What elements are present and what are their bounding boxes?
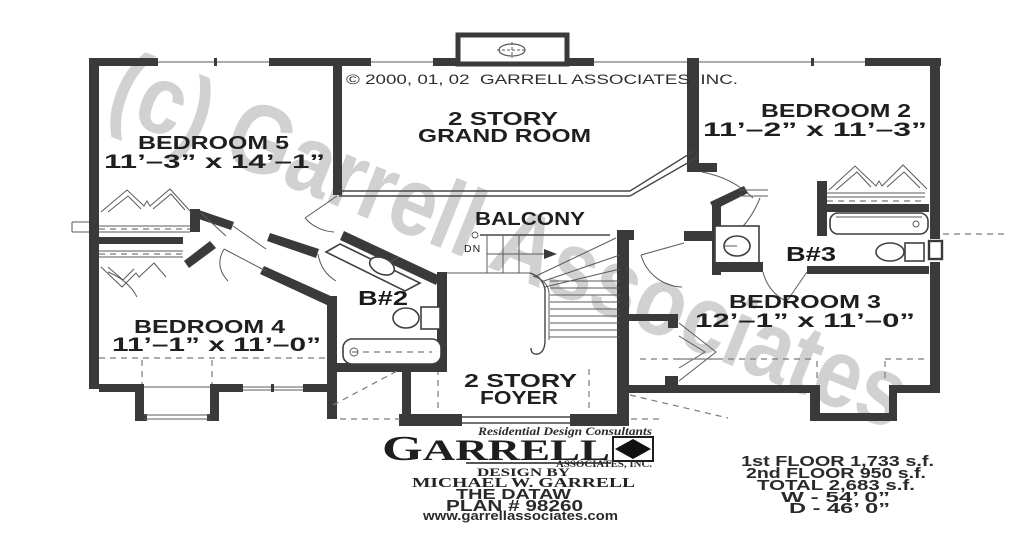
- svg-text:12’–1” x 11’–0”: 12’–1” x 11’–0”: [695, 311, 915, 332]
- svg-text:D - 46’ 0”: D - 46’ 0”: [789, 500, 890, 517]
- svg-text:B#3: B#3: [786, 244, 836, 266]
- svg-text:FOYER: FOYER: [480, 388, 558, 408]
- svg-text:GRAND ROOM: GRAND ROOM: [418, 126, 591, 146]
- svg-text:11’–1” x 11’–0”: 11’–1” x 11’–0”: [112, 335, 321, 356]
- svg-text:BALCONY: BALCONY: [475, 209, 585, 229]
- svg-text:ASSOCIATES, INC.: ASSOCIATES, INC.: [556, 459, 652, 469]
- svg-text:11’–2” x 11’–3”: 11’–2” x 11’–3”: [703, 120, 927, 141]
- svg-text:BEDROOM 2: BEDROOM 2: [761, 101, 911, 121]
- svg-text:BEDROOM 5: BEDROOM 5: [138, 133, 289, 153]
- svg-text:B#2: B#2: [358, 288, 408, 310]
- svg-text:DN: DN: [464, 243, 481, 255]
- svg-text:www.garrellassociates.com: www.garrellassociates.com: [422, 508, 618, 523]
- svg-text:BEDROOM 3: BEDROOM 3: [729, 292, 881, 312]
- svg-text:BEDROOM 4: BEDROOM 4: [134, 317, 285, 337]
- svg-text:11’–3” x 14’–1”: 11’–3” x 14’–1”: [104, 152, 325, 173]
- svg-text:© 2000, 01, 02 GARRELL ASSOCI: © 2000, 01, 02 GARRELL ASSOCIATES INC.: [346, 72, 738, 87]
